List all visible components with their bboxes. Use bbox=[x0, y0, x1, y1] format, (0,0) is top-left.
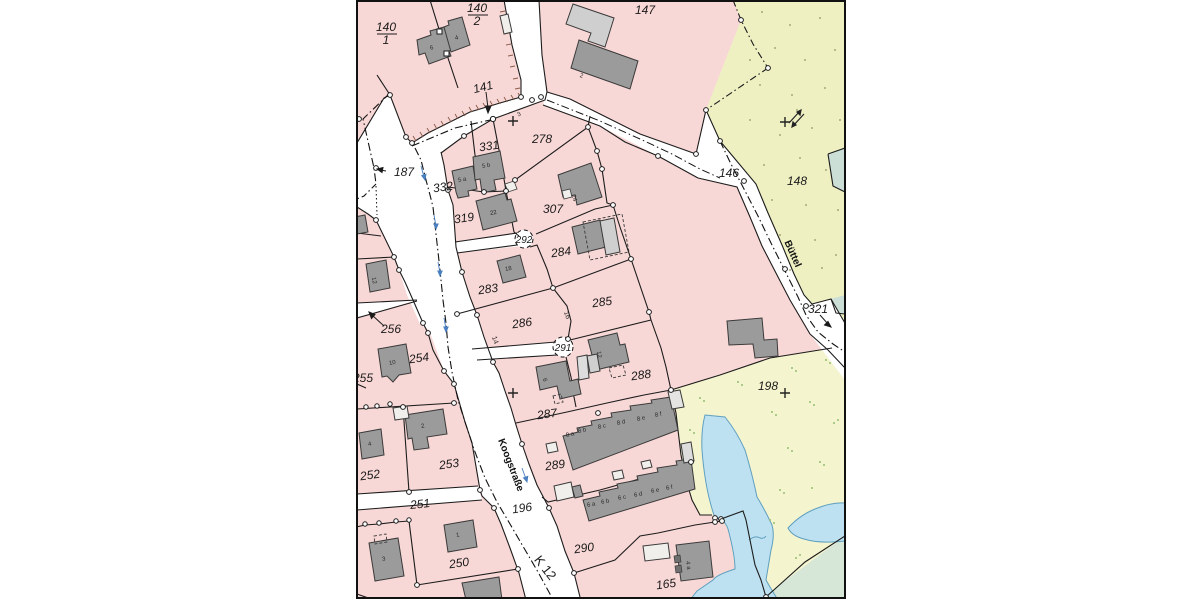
svg-text:140: 140 bbox=[467, 1, 487, 15]
svg-text:147: 147 bbox=[635, 3, 656, 17]
svg-text:284: 284 bbox=[549, 244, 572, 261]
svg-text:283: 283 bbox=[476, 281, 499, 298]
svg-text:250: 250 bbox=[447, 555, 470, 572]
svg-text:253: 253 bbox=[437, 456, 460, 473]
svg-text:292: 292 bbox=[515, 235, 533, 246]
svg-text:286: 286 bbox=[510, 315, 533, 332]
svg-text:288: 288 bbox=[629, 367, 652, 384]
svg-text:256: 256 bbox=[380, 322, 401, 336]
svg-text:165: 165 bbox=[655, 576, 677, 593]
svg-text:331: 331 bbox=[478, 138, 500, 155]
svg-text:290: 290 bbox=[572, 540, 595, 557]
svg-text:187: 187 bbox=[394, 165, 415, 179]
svg-text:278: 278 bbox=[531, 132, 552, 146]
svg-text:332: 332 bbox=[432, 179, 454, 196]
svg-text:148: 148 bbox=[787, 174, 807, 188]
svg-text:196: 196 bbox=[511, 500, 533, 517]
svg-text:319: 319 bbox=[453, 210, 475, 227]
svg-text:254: 254 bbox=[407, 350, 430, 367]
svg-text:252: 252 bbox=[358, 467, 381, 484]
svg-text:251: 251 bbox=[408, 496, 430, 512]
svg-text:285: 285 bbox=[590, 294, 613, 311]
svg-text:140: 140 bbox=[376, 20, 396, 34]
svg-text:2: 2 bbox=[473, 14, 481, 28]
svg-text:291: 291 bbox=[554, 343, 572, 354]
svg-text:198: 198 bbox=[758, 379, 778, 393]
svg-text:1: 1 bbox=[383, 33, 390, 47]
svg-text:289: 289 bbox=[543, 457, 566, 474]
svg-text:321: 321 bbox=[808, 302, 828, 316]
svg-text:307: 307 bbox=[543, 202, 564, 216]
svg-text:146: 146 bbox=[719, 166, 739, 180]
